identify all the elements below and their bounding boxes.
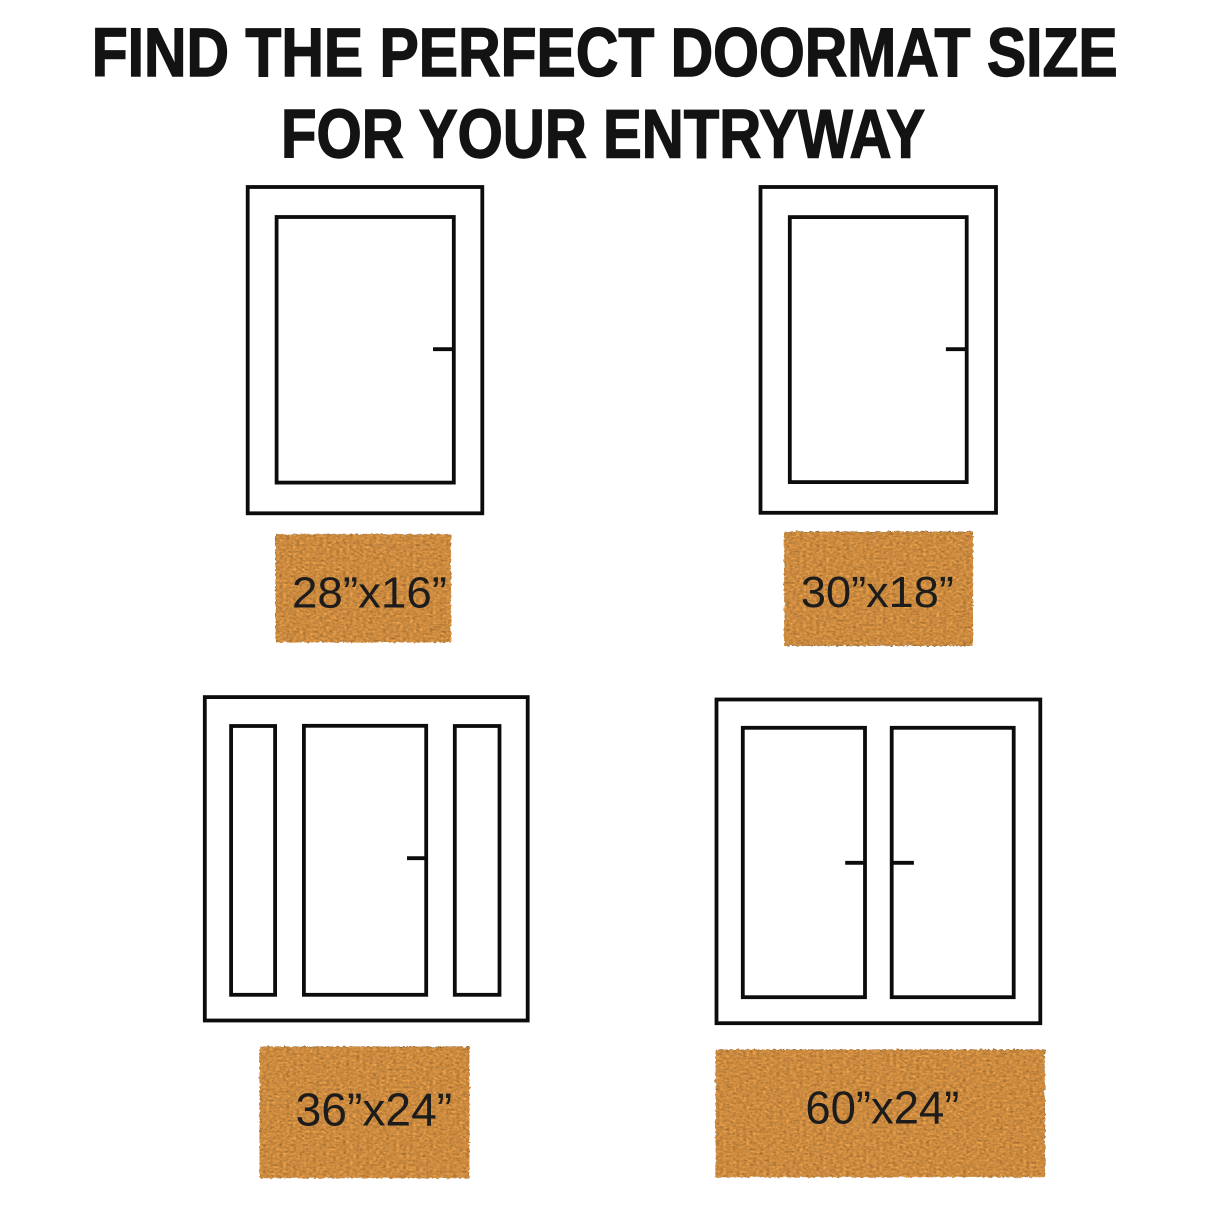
svg-text:60”x24”: 60”x24”: [805, 1081, 959, 1133]
svg-text:36”x24”: 36”x24”: [296, 1084, 453, 1136]
svg-text:28”x16”: 28”x16”: [292, 569, 447, 617]
svg-text:FIND THE PERFECT DOORMAT SIZE: FIND THE PERFECT DOORMAT SIZE: [92, 14, 1118, 91]
svg-text:FOR YOUR ENTRYWAY: FOR YOUR ENTRYWAY: [281, 96, 925, 173]
svg-text:30”x18”: 30”x18”: [801, 569, 954, 617]
